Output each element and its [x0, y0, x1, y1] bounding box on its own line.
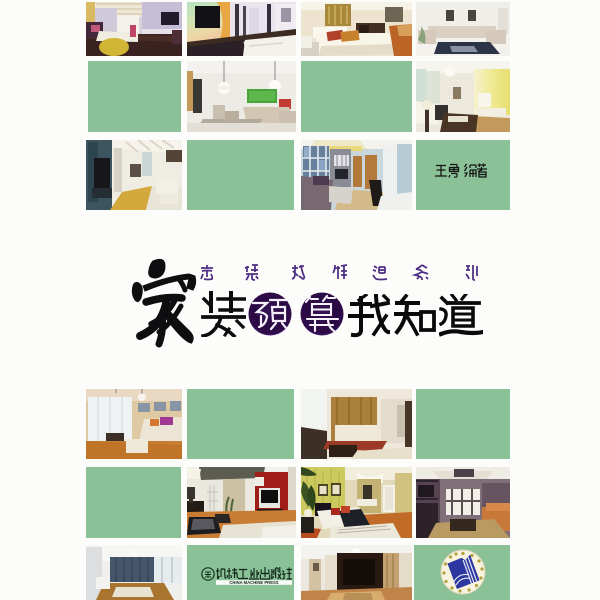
svg-text:CHINA MACHINE PRESS: CHINA MACHINE PRESS [229, 580, 278, 585]
